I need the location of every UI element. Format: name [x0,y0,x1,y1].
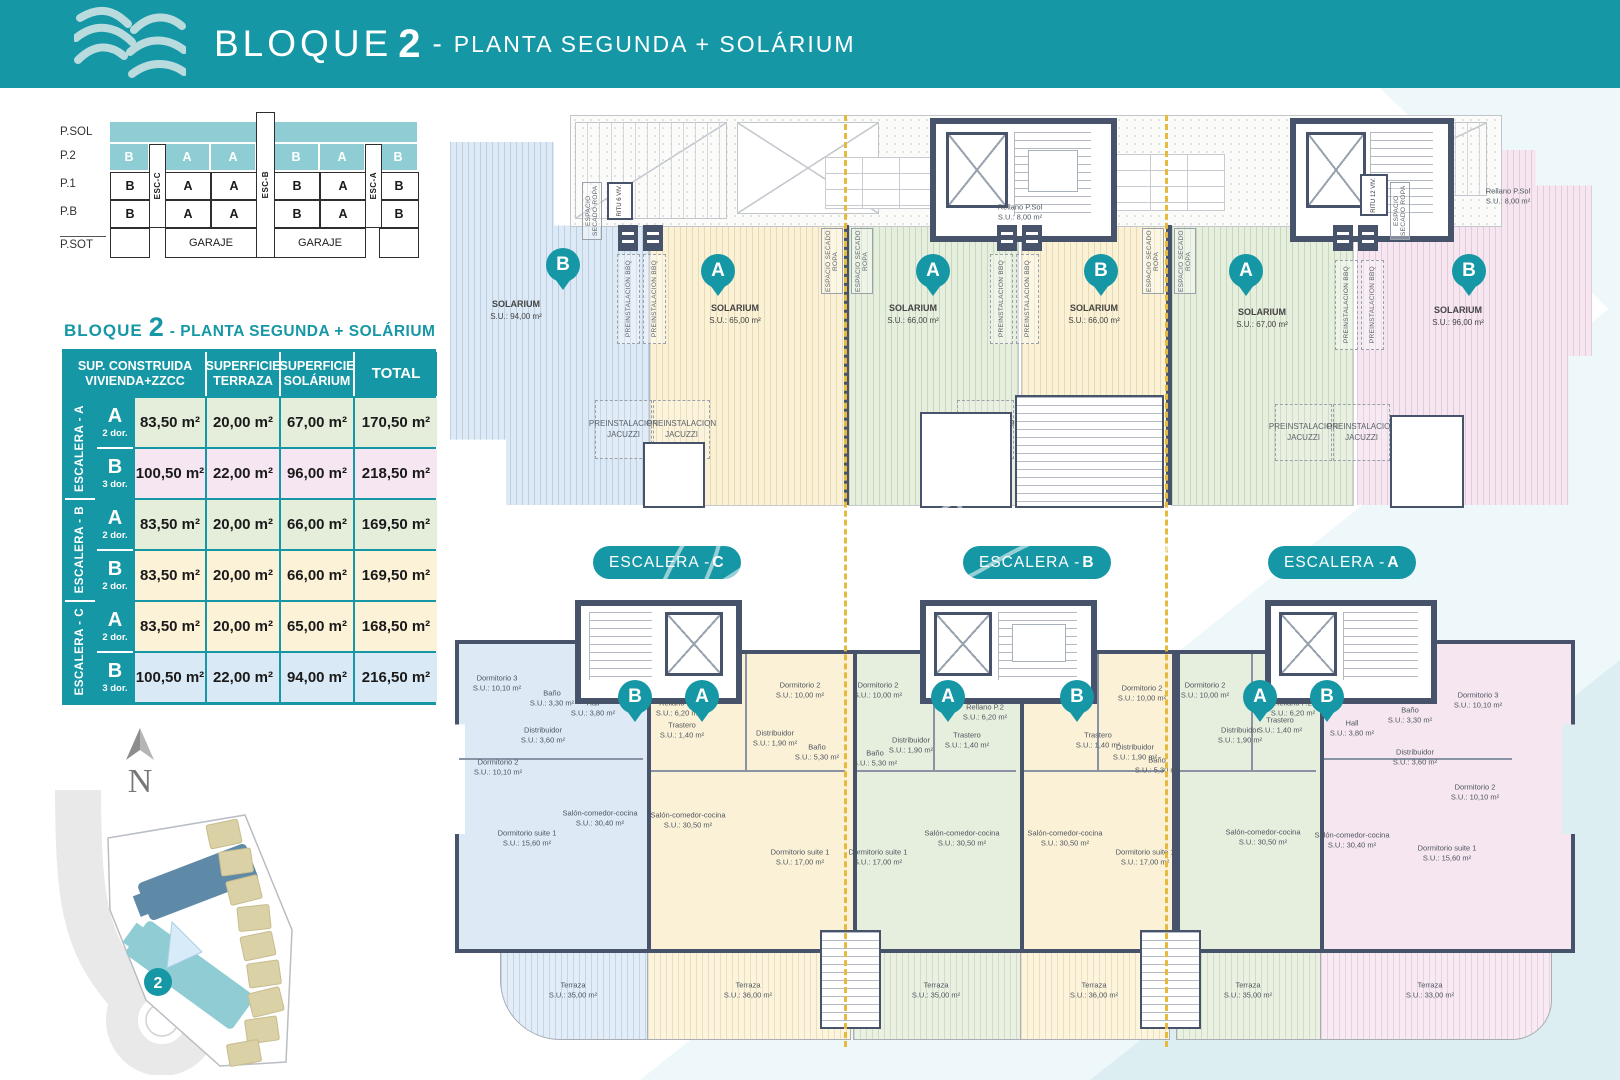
room-label: HallS.U.: 3,80 m² [571,698,615,718]
unit-cell: B2 dor. [97,551,133,600]
unit-cell: B3 dor. [97,653,133,702]
unit-pin: A [700,254,736,296]
stair-opening [1015,395,1164,508]
value-cell: 20,00 m² [207,500,279,549]
room-label: Salón-comedor-cocinaS.U.: 30,50 m² [1027,828,1102,848]
room-label: Salón-comedor-cocinaS.U.: 30,50 m² [650,810,725,830]
title-block: BLOQUE [214,23,392,65]
room-label: Dormitorio 2S.U.: 10,00 m² [776,680,824,700]
title-block-number: 2 [398,22,420,67]
stack-row-label: P.1 [60,178,106,190]
value-cell: 83,50 m² [135,500,205,549]
vent-shaft [1358,225,1378,251]
jacuzzi-box: PREINSTALACION JACUZZI [1275,404,1332,461]
north-arrow-icon [118,728,162,762]
room-label: Dormitorio 3S.U.: 10,10 m² [1454,690,1502,710]
col-header-total: TOTAL [355,352,437,396]
solarium-area-label: SOLARIUMS.U.: 94,00 m² [490,298,542,322]
rellano-label: Rellano P.SolS.U.: 8,00 m² [1486,186,1530,206]
unit-cell: A2 dor. [97,602,133,651]
elevator-icon [1306,132,1366,208]
rellano-label: Rellano P.2S.U.: 6,20 m² [963,702,1007,722]
table-grid: SUP. CONSTRUIDAVIVIENDA+ZZCC SUPERFICIET… [62,349,436,705]
value-cell: 67,00 m² [281,398,353,447]
col-header-construida: SUP. CONSTRUIDAVIVIENDA+ZZCC [65,352,205,396]
value-cell: 169,50 m² [355,500,437,549]
stair-landing [1028,150,1078,192]
pergola-slats [1113,154,1225,211]
value-cell: 20,00 m² [207,602,279,651]
bbq-box: PREINSTALACION BBQ [1016,254,1039,344]
secado-box: ESPACIO SECADO ROPA [851,228,873,294]
room-label: Salón-comedor-cocinaS.U.: 30,40 m² [562,808,637,828]
unit-pin: B [1309,680,1345,722]
terraza-label: TerrazaS.U.: 35,00 m² [1224,980,1272,1000]
p2-cell: B [110,144,148,170]
room-label: TrasteroS.U.: 1,40 m² [945,730,989,750]
value-cell: 100,50 m² [135,449,205,498]
solarium-area-label: SOLARIUMS.U.: 66,00 m² [1068,302,1120,326]
room-label: Dormitorio suite 1S.U.: 17,00 m² [771,847,830,867]
stair-landing [1012,624,1066,662]
section-divider-line [1165,115,1168,1047]
section-divider-line [844,115,847,1047]
ritu-box: RITU 12 VIV. [1360,174,1388,216]
room-label: Salón-comedor-cocinaS.U.: 30,50 m² [1225,827,1300,847]
stack-row-label: P.SOT [60,236,106,251]
second-floor-plan: ESCALERA - C ESCALERA - B ESCALERA - A [445,540,1600,1050]
value-cell: 66,00 m² [281,500,353,549]
core-esc-a [1265,600,1437,704]
esc-a-column: ESC-A [365,144,382,228]
escalera-b-label: ESCALERA - B [65,500,95,600]
stair-opening [820,930,881,1029]
solarium-floor-plan: Rellano P.SolS.U.: 8,00 m² Rellano P.Sol… [445,112,1600,512]
elevator-icon [665,612,723,676]
value-cell: 20,00 m² [207,398,279,447]
bbq-box: PREINSTALACION BBQ [643,254,666,344]
solarium-area-label: SOLARIUMS.U.: 96,00 m² [1432,304,1484,328]
p2-cell: A [320,144,364,170]
room-label: Dormitorio 3S.U.: 10,10 m² [473,673,521,693]
unit-pin: A [915,254,951,296]
bbq-box: PREINSTALACION BBQ [1361,260,1384,350]
value-cell: 22,00 m² [207,449,279,498]
value-cell: 20,00 m² [207,551,279,600]
elevator-icon [946,132,1008,208]
pb-cell: B [110,200,150,228]
secado-box: ESPACIO SECADO ROPA [582,182,602,240]
room-label: DistribuidorS.U.: 3,60 m² [1393,747,1437,767]
room-label: DistribuidorS.U.: 1,90 m² [753,728,797,748]
site-plan: 2 [50,790,350,1075]
unit-pin: A [684,680,720,722]
p1-cell: B [274,172,320,200]
garaje-cell: GARAJE [165,228,257,258]
secado-box: ESPACIO SECADO ROPA [1390,182,1410,240]
unit-pin: B [617,680,653,722]
value-cell: 83,50 m² [135,551,205,600]
building-stack-diagram: P.SOL P.2 P.1 P.B P.SOT B A A B A B B A … [60,116,430,268]
unit-cell: B3 dor. [97,449,133,498]
room-label: Dormitorio 2S.U.: 10,00 m² [1181,680,1229,700]
title-floor: PLANTA SEGUNDA + SOLÁRIUM [454,31,856,58]
p1-cell: A [320,172,366,200]
p2-cell: B [274,144,318,170]
esc-b-column: ESC-B [256,112,275,258]
garaje-cell: GARAJE [274,228,366,258]
secado-box: ESPACIO SECADO ROPA [1174,228,1196,294]
page-title: BLOQUE2 - PLANTA SEGUNDA + SOLÁRIUM [214,0,856,88]
psot-cell [379,228,419,258]
col-header-solarium: SUPERFICIESOLÁRIUM [281,352,353,396]
room-label: BañoS.U.: 5,30 m² [853,748,897,768]
pergola-slats [825,157,939,209]
bbq-box: PREINSTALACION BBQ [617,254,640,344]
pb-cell: A [320,200,366,228]
terraza-label: TerrazaS.U.: 35,00 m² [549,980,597,1000]
pb-cell: A [165,200,211,228]
terraza-label: TerrazaS.U.: 35,00 m² [912,980,960,1000]
room-label: Dormitorio suite 1S.U.: 15,60 m² [1418,843,1477,863]
value-cell: 96,00 m² [281,449,353,498]
unit-pin: A [1228,254,1264,296]
psot-cell [110,228,150,258]
room-label: Dormitorio suite 1S.U.: 17,00 m² [849,847,908,867]
room-label: BañoS.U.: 3,30 m² [1388,705,1432,725]
secado-box: ESPACIO SECADO ROPA [821,228,843,294]
stack-row-label: P.B [60,206,106,218]
stairs [589,612,652,680]
p1-cell: B [379,172,419,200]
terraza-label: TerrazaS.U.: 33,00 m² [1406,980,1454,1000]
secado-box: ESPACIO SECADO ROPA [1142,228,1164,294]
unit-cell: A2 dor. [97,398,133,447]
escalera-b-pill: ESCALERA - B [963,546,1111,579]
unit-pin: A [930,680,966,722]
room-label: BañoS.U.: 5,30 m² [1135,755,1179,775]
pb-cell: B [274,200,320,228]
vent-shaft [1022,225,1042,251]
room-label: BañoS.U.: 5,30 m² [795,742,839,762]
roof-opening [643,442,705,508]
p2-cell: A [211,144,255,170]
p1-cell: B [110,172,150,200]
surface-table: BLOQUE 2 - PLANTA SEGUNDA + SOLÁRIUM SUP… [62,312,436,705]
elevator-icon [1279,612,1337,676]
value-cell: 83,50 m² [135,602,205,651]
escalera-c-pill: ESCALERA - C [593,546,741,579]
value-cell: 22,00 m² [207,653,279,702]
value-cell: 216,50 m² [355,653,437,702]
col-header-terraza: SUPERFICIETERRAZA [207,352,279,396]
vent-shaft [618,225,638,251]
core-esc-b [930,118,1117,242]
stair-opening [1140,930,1201,1029]
value-cell: 168,50 m² [355,602,437,651]
value-cell: 169,50 m² [355,551,437,600]
value-cell: 100,50 m² [135,653,205,702]
vent-shaft [997,225,1017,251]
solarium-area-label: SOLARIUMS.U.: 65,00 m² [709,302,761,326]
escalera-a-label: ESCALERA - A [65,398,95,498]
ritu-box: RITU 6 VIV. [607,182,633,220]
value-cell: 94,00 m² [281,653,353,702]
room-label: Dormitorio 2S.U.: 10,00 m² [1118,683,1166,703]
table-title: BLOQUE 2 - PLANTA SEGUNDA + SOLÁRIUM [64,312,436,343]
unit-pin: A [1242,680,1278,722]
unit-pin: B [545,248,581,290]
header-bar: BLOQUE2 - PLANTA SEGUNDA + SOLÁRIUM [0,0,1620,88]
solarium-area-label: SOLARIUMS.U.: 66,00 m² [887,302,939,326]
unit-pin: B [1059,680,1095,722]
table-title-number: 2 [149,312,164,343]
p2-cell: A [165,144,209,170]
brand-wave-logo-icon [74,4,186,84]
rellano-label: Rellano P.SolS.U.: 8,00 m² [998,202,1042,222]
stairs [1343,612,1418,680]
elevator-icon [934,612,992,676]
jacuzzi-box: PREINSTALACION JACUZZI [1333,404,1390,461]
room-label: Salón-comedor-cocinaS.U.: 30,50 m² [924,828,999,848]
esc-c-column: ESC-C [149,144,166,228]
p1-cell: A [165,172,211,200]
pb-cell: B [379,200,419,228]
room-label: DistribuidorS.U.: 3,60 m² [521,725,565,745]
bbq-box: PREINSTALACION BBQ [1335,260,1358,350]
escalera-c-label: ESCALERA - C [65,602,95,702]
value-cell: 83,50 m² [135,398,205,447]
unit-cell: A2 dor. [97,500,133,549]
value-cell: 170,50 m² [355,398,437,447]
stack-row-label: P.SOL [60,126,106,138]
plan-sheet: BLOQUE2 - PLANTA SEGUNDA + SOLÁRIUM P.SO… [0,0,1620,1080]
vent-shaft [1333,225,1353,251]
room-label: Dormitorio 2S.U.: 10,10 m² [1451,782,1499,802]
table-title-rest: - PLANTA SEGUNDA + SOLÁRIUM [170,323,436,341]
north-compass: N [118,728,162,798]
unit-pin: B [1083,254,1119,296]
value-cell: 65,00 m² [281,602,353,651]
pb-cell: A [211,200,257,228]
p2-cell: B [379,144,417,170]
room-label: Dormitorio 2S.U.: 10,10 m² [474,757,522,777]
title-dash: - [432,28,441,60]
unit-pin: B [1451,254,1487,296]
terraza-label: TerrazaS.U.: 36,00 m² [1070,980,1118,1000]
block-2-number: 2 [154,975,163,992]
value-cell: 66,00 m² [281,551,353,600]
room-label: Dormitorio 2S.U.: 10,00 m² [854,680,902,700]
roof-opening [920,412,1012,508]
terraza-label: TerrazaS.U.: 36,00 m² [724,980,772,1000]
room-label: Dormitorio suite 1S.U.: 15,60 m² [498,828,557,848]
room-label: TrasteroS.U.: 1,40 m² [660,720,704,740]
stack-row-label: P.2 [60,150,106,162]
p1-cell: A [211,172,257,200]
table-title-block: BLOQUE [64,321,143,341]
escalera-a-pill: ESCALERA - A [1268,546,1416,579]
room-label: Salón-comedor-cocinaS.U.: 30,40 m² [1314,830,1389,850]
room-label: BañoS.U.: 3,30 m² [530,688,574,708]
value-cell: 218,50 m² [355,449,437,498]
roof-opening [1390,415,1464,508]
solarium-area-label: SOLARIUMS.U.: 67,00 m² [1236,306,1288,330]
vent-shaft [643,225,663,251]
bbq-box: PREINSTALACION BBQ [990,254,1013,344]
room-label: DistribuidorS.U.: 1,90 m² [1218,725,1262,745]
